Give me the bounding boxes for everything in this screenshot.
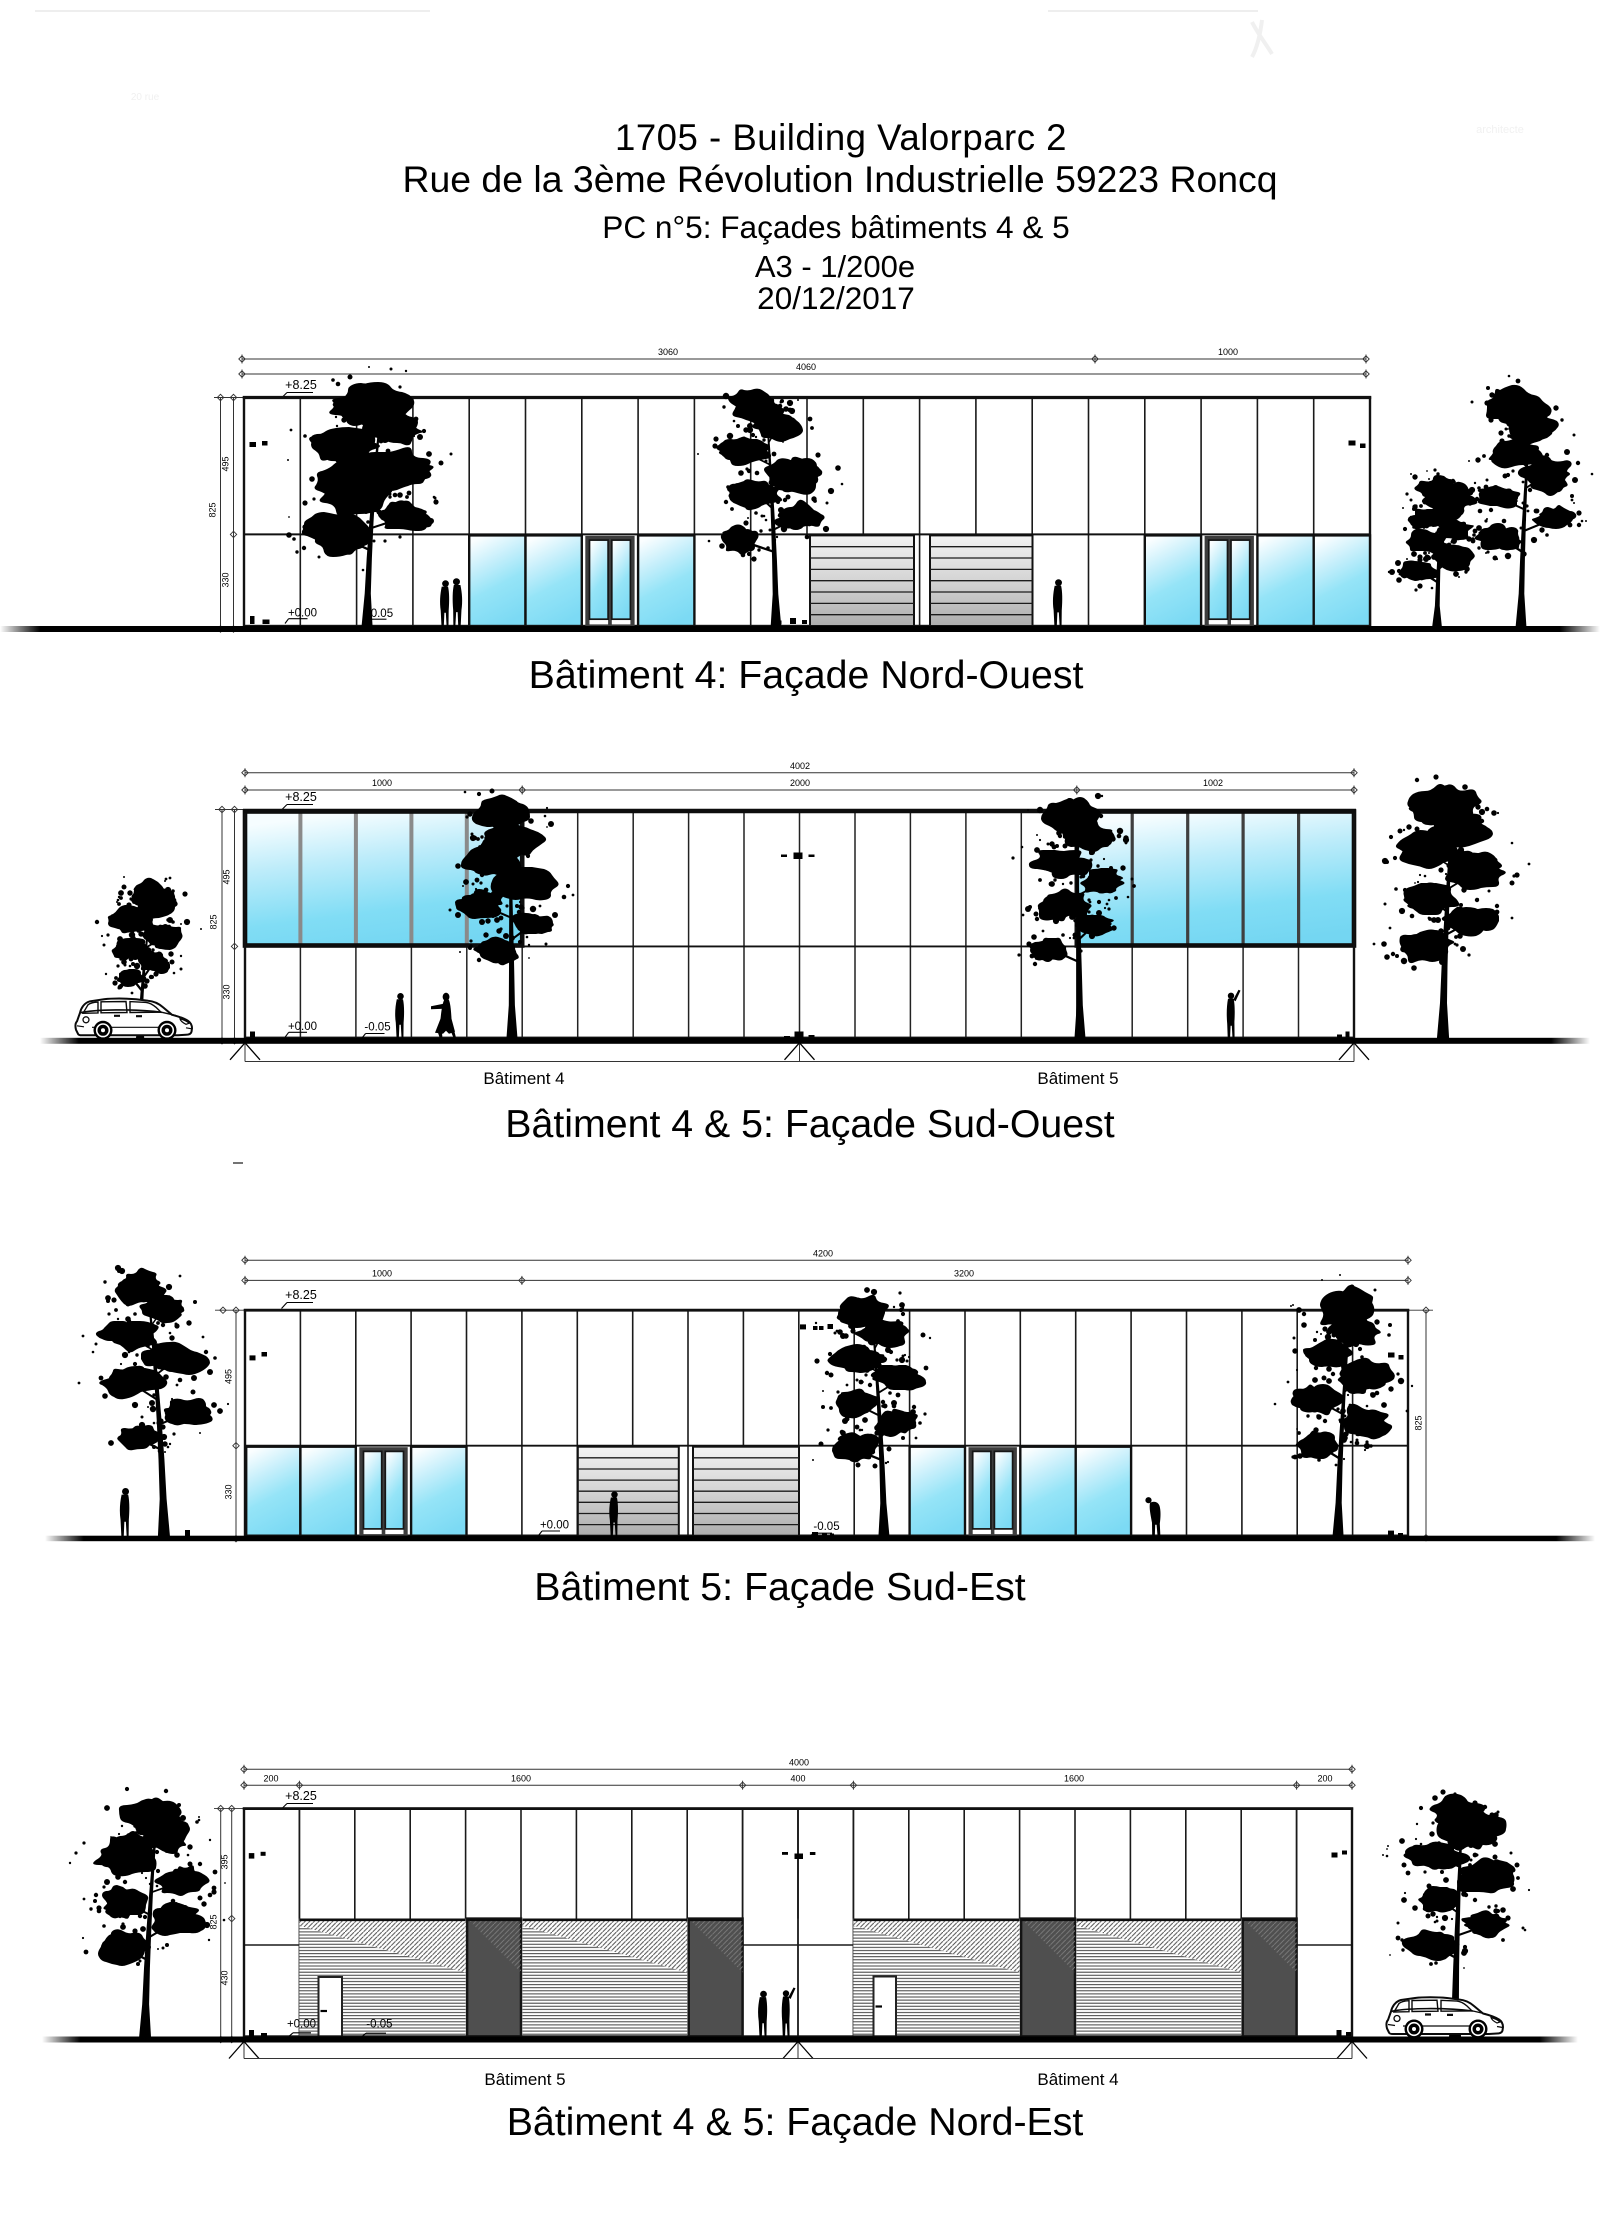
svg-text:495: 495 [224,1369,234,1384]
svg-text:+0.00: +0.00 [287,2019,316,2031]
svg-text:20 rue: 20 rue [131,92,160,103]
svg-text:200: 200 [1317,1773,1332,1783]
svg-text:1600: 1600 [1064,1773,1084,1783]
svg-text:200: 200 [263,1773,278,1783]
svg-text:395: 395 [220,1854,230,1869]
svg-text:2000: 2000 [790,778,810,788]
svg-text:4002: 4002 [790,761,810,771]
svg-text:Bâtiment 4 & 5: Façade Nord-Es: Bâtiment 4 & 5: Façade Nord-Est [507,2100,1084,2144]
svg-text:400: 400 [790,1773,805,1783]
svg-text:1705 - Building Valorparc 2: 1705 - Building Valorparc 2 [615,117,1067,158]
svg-text:330: 330 [224,1484,234,1499]
svg-text:4060: 4060 [796,362,816,372]
svg-text:495: 495 [222,869,232,884]
svg-text:4200: 4200 [813,1249,833,1259]
svg-text:+8.25: +8.25 [285,378,317,392]
svg-text:1002: 1002 [1203,778,1223,788]
svg-text:-0.05: -0.05 [366,2019,392,2031]
svg-text:3200: 3200 [954,1269,974,1279]
svg-text:+8.25: +8.25 [285,790,317,804]
svg-text:825: 825 [208,502,218,517]
svg-text:Rue de la 3ème Révolution Indu: Rue de la 3ème Révolution Industrielle 5… [402,158,1277,200]
svg-text:4000: 4000 [789,1758,809,1768]
svg-text:Bâtiment 4: Bâtiment 4 [1037,2070,1118,2089]
svg-text:Bâtiment 4: Bâtiment 4 [483,1069,564,1088]
svg-text:-0.05: -0.05 [364,1022,390,1034]
svg-text:PC n°5: Façades bâtiments 4 &: PC n°5: Façades bâtiments 4 & 5 [602,209,1069,245]
svg-text:1000: 1000 [372,778,392,788]
svg-text:330: 330 [222,984,232,999]
svg-text:3060: 3060 [658,347,678,357]
svg-text:Bâtiment 5: Bâtiment 5 [1037,1069,1118,1088]
svg-text:430: 430 [220,1970,230,1985]
svg-text:+0.00: +0.00 [288,608,317,620]
svg-text:+8.25: +8.25 [285,1789,317,1803]
svg-text:Bâtiment 4: Façade Nord-Ouest: Bâtiment 4: Façade Nord-Ouest [529,653,1084,697]
svg-text:architecte: architecte [1476,124,1524,136]
svg-text:495: 495 [221,456,231,471]
svg-text:825: 825 [209,1914,219,1929]
svg-text:Bâtiment 4 & 5: Façade Sud-Oue: Bâtiment 4 & 5: Façade Sud-Ouest [505,1102,1115,1146]
svg-text:Bâtiment 5: Bâtiment 5 [484,2070,565,2089]
svg-text:A3 - 1/200e: A3 - 1/200e [755,249,915,284]
svg-text:Bâtiment 5: Façade Sud-Est: Bâtiment 5: Façade Sud-Est [534,1565,1026,1609]
svg-text:825: 825 [1414,1415,1424,1430]
svg-text:-0.05: -0.05 [813,1521,839,1533]
svg-text:330: 330 [221,572,231,587]
svg-text:1600: 1600 [511,1773,531,1783]
svg-text:+8.25: +8.25 [285,1288,317,1302]
svg-text:1000: 1000 [372,1269,392,1279]
svg-text:20/12/2017: 20/12/2017 [757,280,915,316]
svg-text:825: 825 [209,914,219,929]
svg-text:+0.00: +0.00 [540,1520,569,1532]
svg-text:+0.00: +0.00 [288,1021,317,1033]
svg-text:1000: 1000 [1218,347,1238,357]
